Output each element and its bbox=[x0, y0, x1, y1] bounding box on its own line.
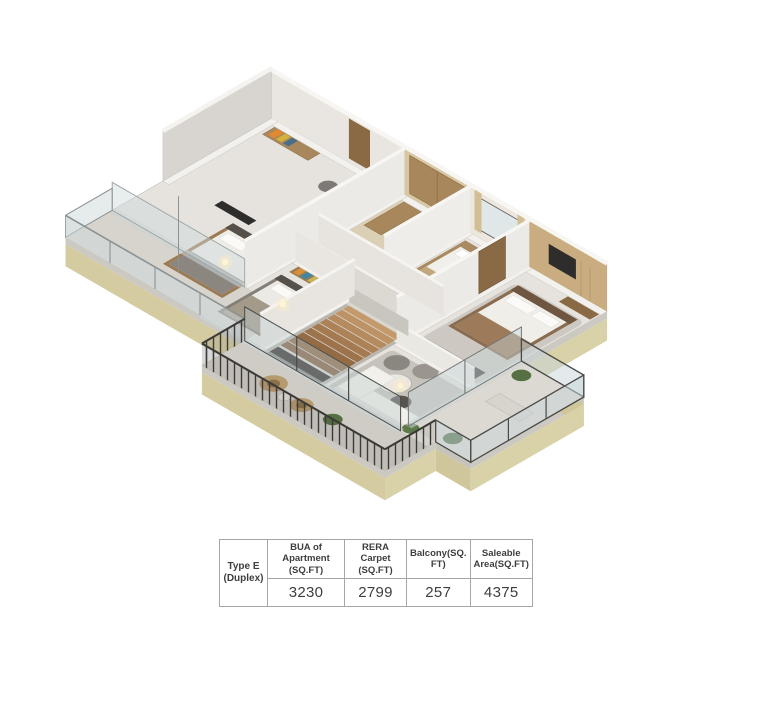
spec-table: Type E (Duplex) BUA of Apartment (SQ.FT)… bbox=[219, 539, 533, 607]
spec-col-header-rera: RERA Carpet (SQ.FT) bbox=[345, 540, 407, 579]
curtain-left bbox=[475, 190, 482, 234]
floor-plan-illustration bbox=[0, 0, 768, 530]
spec-row-label: Type E (Duplex) bbox=[220, 540, 268, 607]
spec-header-row: Type E (Duplex) BUA of Apartment (SQ.FT)… bbox=[220, 540, 533, 579]
spec-value-balcony: 257 bbox=[407, 579, 471, 607]
spec-value-saleable: 4375 bbox=[470, 579, 532, 607]
spec-value-bua: 3230 bbox=[268, 579, 345, 607]
spec-col-header-bua: BUA of Apartment (SQ.FT) bbox=[268, 540, 345, 579]
spec-col-header-balcony: Balcony(SQ. FT) bbox=[407, 540, 471, 579]
spec-value-rera: 2799 bbox=[345, 579, 407, 607]
isometric-duplex-render bbox=[0, 0, 768, 530]
floor-plan-page: { "palette": { "background": "#ffffff", … bbox=[0, 0, 768, 710]
spec-col-header-saleable: Saleable Area(SQ.FT) bbox=[470, 540, 532, 579]
